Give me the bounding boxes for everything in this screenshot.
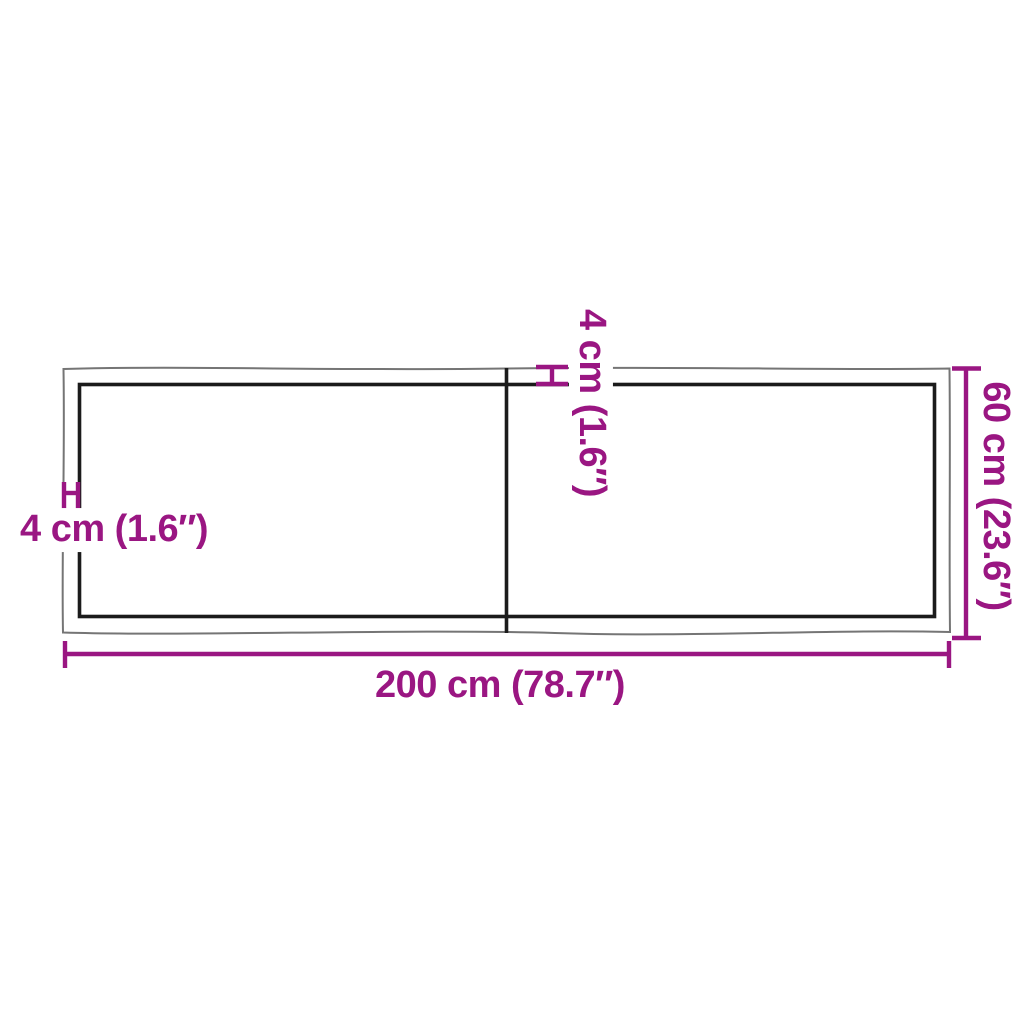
edge-thickness-marker-top bbox=[536, 367, 568, 384]
depth-dimension-label: 60 cm (23.6″) bbox=[975, 381, 1015, 610]
edge-top-dimension-label: 4 cm (1.6″) bbox=[569, 304, 613, 502]
dimension-diagram: 200 cm (78.7″) 60 cm (23.6″) 4 cm (1.6″)… bbox=[0, 0, 1024, 1024]
width-dimension-label: 200 cm (78.7″) bbox=[375, 666, 625, 706]
edge-thickness-marker-left bbox=[64, 482, 78, 510]
edge-left-dimension-label: 4 cm (1.6″) bbox=[15, 508, 213, 552]
